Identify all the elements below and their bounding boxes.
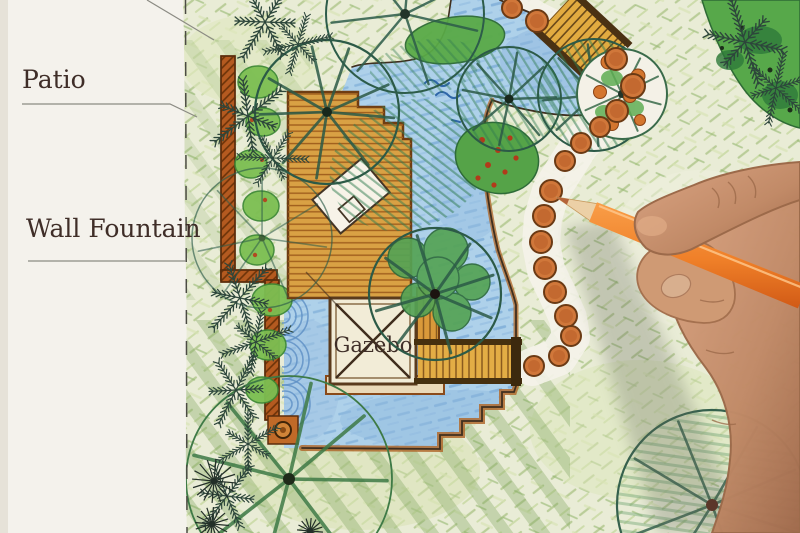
patio-label: Patio bbox=[22, 65, 86, 94]
boardwalk bbox=[414, 337, 522, 386]
gazebo-label: Gazebo bbox=[334, 333, 413, 357]
plan-drawing: Gazebo bbox=[0, 0, 800, 533]
wall-fountain-label: Wall Fountain bbox=[26, 214, 201, 243]
landscape-plan-photo: Gazebo bbox=[0, 0, 800, 533]
paper-margin: Patio Wall Fountain bbox=[0, 0, 214, 533]
